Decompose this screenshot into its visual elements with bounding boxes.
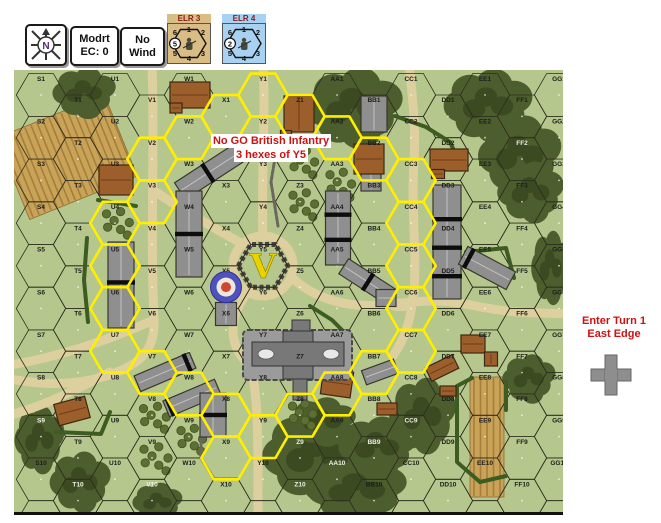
wooden-building <box>440 386 456 396</box>
hex-label-BB4: BB4 <box>367 225 380 232</box>
hex-label-Y4: Y4 <box>259 204 267 211</box>
hex-label-S10: S10 <box>35 460 47 467</box>
hex-label-AA8: AA8 <box>330 375 343 382</box>
hex-label-S5: S5 <box>37 247 45 254</box>
wooden-building <box>170 103 182 113</box>
hex-label-U5: U5 <box>111 247 120 254</box>
hex-label-X3: X3 <box>222 183 230 190</box>
hex-label-V6: V6 <box>148 311 156 318</box>
elr-counter-face: 6123452 <box>222 23 266 64</box>
hex-label-GG7: GG7 <box>552 332 563 339</box>
hex-label-CC9: CC9 <box>404 417 417 424</box>
svg-text:4: 4 <box>187 54 192 63</box>
weather-ec-button[interactable]: Modrt EC: 0 <box>70 26 119 66</box>
stone-building <box>107 242 135 328</box>
hex-label-Z8: Z8 <box>296 396 304 403</box>
hex-label-V9: V9 <box>148 439 156 446</box>
hex-label-Z10: Z10 <box>294 481 306 488</box>
hex-label-T4: T4 <box>74 225 82 232</box>
hex-label-GG9: GG9 <box>552 417 563 424</box>
hex-label-AA4: AA4 <box>330 204 343 211</box>
hex-label-S1: S1 <box>37 76 45 83</box>
weather-line1: Modrt <box>79 33 110 46</box>
svg-text:2: 2 <box>228 39 232 48</box>
hex-label-EE5: EE5 <box>479 247 492 254</box>
wind-line2: Wind <box>129 47 156 60</box>
wooden-building <box>485 352 498 366</box>
hex-label-AA3: AA3 <box>330 161 343 168</box>
wooden-building <box>430 149 468 171</box>
hex-label-U9: U9 <box>111 417 120 424</box>
enter-turn-annotation: Enter Turn 1 East Edge <box>570 315 658 341</box>
hex-label-S3: S3 <box>37 161 45 168</box>
british-roundel-marker[interactable] <box>211 272 242 303</box>
hex-label-CC2: CC2 <box>404 119 417 126</box>
hex-label-T9: T9 <box>74 439 82 446</box>
hex-label-X10: X10 <box>220 481 232 488</box>
hex-label-X6: X6 <box>222 311 230 318</box>
hex-label-U1: U1 <box>111 76 120 83</box>
hex-label-CC1: CC1 <box>404 76 417 83</box>
hex-label-GG3: GG3 <box>552 161 563 168</box>
hex-label-BB1: BB1 <box>367 97 380 104</box>
hex-label-CC4: CC4 <box>404 204 417 211</box>
hex-label-U10: U10 <box>109 460 121 467</box>
hex-label-AA10: AA10 <box>329 460 346 467</box>
hex-label-X7: X7 <box>222 353 230 360</box>
hex-label-GG10: GG10 <box>550 460 563 467</box>
hex-label-GG1: GG1 <box>552 76 563 83</box>
hex-label-W6: W6 <box>184 289 194 296</box>
hex-label-Z4: Z4 <box>296 225 304 232</box>
hex-label-Y1: Y1 <box>259 76 267 83</box>
wooden-building <box>99 165 133 195</box>
hex-label-EE9: EE9 <box>479 417 492 424</box>
hex-label-CC6: CC6 <box>404 289 417 296</box>
hex-label-FF3: FF3 <box>516 183 528 190</box>
no-go-line1: No GO British Infantry <box>211 134 331 148</box>
hex-label-T2: T2 <box>74 140 82 147</box>
hex-label-U7: U7 <box>111 332 120 339</box>
hex-label-W1: W1 <box>184 76 194 83</box>
hex-label-Y7: Y7 <box>259 332 267 339</box>
hex-label-Z5: Z5 <box>296 268 304 275</box>
hex-label-CC3: CC3 <box>404 161 417 168</box>
hex-label-DD8: DD8 <box>441 396 454 403</box>
hex-label-BB10: BB10 <box>366 481 383 488</box>
no-go-line2: 3 hexes of Y5 <box>234 148 308 162</box>
hex-label-U2: U2 <box>111 119 120 126</box>
hex-label-T8: T8 <box>74 396 82 403</box>
enter-line1: Enter Turn 1 <box>582 315 646 327</box>
svg-text:3: 3 <box>256 49 260 58</box>
hex-label-Y8: Y8 <box>259 375 267 382</box>
hex-label-S9: S9 <box>37 417 45 424</box>
hex-label-S8: S8 <box>37 375 45 382</box>
hex-label-V3: V3 <box>148 183 156 190</box>
hex-label-FF5: FF5 <box>516 268 528 275</box>
hex-label-CC8: CC8 <box>404 375 417 382</box>
hex-label-BB8: BB8 <box>367 396 380 403</box>
hex-label-W10: W10 <box>182 460 196 467</box>
svg-text:6: 6 <box>173 28 177 37</box>
hex-label-T7: T7 <box>74 353 82 360</box>
hex-label-EE3: EE3 <box>479 161 492 168</box>
hex-label-FF4: FF4 <box>516 225 528 232</box>
hex-label-DD1: DD1 <box>441 97 454 104</box>
victory-v-marker[interactable]: V <box>249 247 277 287</box>
stone-building <box>432 185 462 299</box>
hex-label-FF9: FF9 <box>516 439 528 446</box>
hex-label-S2: S2 <box>37 119 45 126</box>
hex-label-Y3: Y3 <box>259 161 267 168</box>
hex-label-S4: S4 <box>37 204 45 211</box>
hex-label-X1: X1 <box>222 97 230 104</box>
svg-text:4: 4 <box>242 54 247 63</box>
hex-label-X4: X4 <box>222 225 230 232</box>
hex-label-W8: W8 <box>184 375 194 382</box>
stone-building <box>325 191 352 265</box>
wooden-building <box>377 403 397 415</box>
svg-text:5: 5 <box>173 49 177 58</box>
hex-label-V10: V10 <box>146 481 158 488</box>
hex-label-U4: U4 <box>111 204 120 211</box>
hex-label-W9: W9 <box>184 417 194 424</box>
hex-label-Z1: Z1 <box>296 97 304 104</box>
hex-label-W4: W4 <box>184 204 194 211</box>
hex-label-Y6: Y6 <box>259 289 267 296</box>
hex-label-Z7: Z7 <box>296 353 304 360</box>
hex-label-DD3: DD3 <box>441 183 454 190</box>
hex-label-AA5: AA5 <box>330 247 343 254</box>
compass-button[interactable]: N <box>25 24 67 66</box>
hex-label-BB9: BB9 <box>367 439 380 446</box>
hex-label-AA2: AA2 <box>330 119 343 126</box>
vasl-window: { "toolbar": { "compass": {"letter": "N"… <box>0 0 661 523</box>
hex-label-BB5: BB5 <box>367 268 380 275</box>
hex-label-W3: W3 <box>184 161 194 168</box>
hex-label-GG8: GG8 <box>552 375 563 382</box>
hex-label-U8: U8 <box>111 375 120 382</box>
hex-label-T6: T6 <box>74 311 82 318</box>
hex-label-CC7: CC7 <box>404 332 417 339</box>
wooden-building <box>354 144 384 174</box>
hex-label-U6: U6 <box>111 289 120 296</box>
hex-label-BB6: BB6 <box>367 311 380 318</box>
hex-label-BB2: BB2 <box>367 140 380 147</box>
hex-label-EE7: EE7 <box>479 332 492 339</box>
hex-label-V1: V1 <box>148 97 156 104</box>
hex-label-DD7: DD7 <box>441 353 454 360</box>
hex-label-Y9: Y9 <box>259 417 267 424</box>
compass-icon: N <box>29 28 63 62</box>
elr-counter-face: 6123455 <box>167 23 211 64</box>
hex-label-DD6: DD6 <box>441 311 454 318</box>
elr-label: ELR 4 <box>222 14 266 23</box>
hex-label-FF10: FF10 <box>514 481 530 488</box>
hex-label-FF1: FF1 <box>516 97 528 104</box>
hex-label-V2: V2 <box>148 140 156 147</box>
hex-label-GG6: GG6 <box>552 289 563 296</box>
svg-text:2: 2 <box>201 28 205 37</box>
wind-line1: No <box>135 34 150 47</box>
hex-label-U3: U3 <box>111 161 120 168</box>
elr4-counter[interactable]: ELR 46123452 <box>222 14 266 64</box>
hex-label-DD2: DD2 <box>441 140 454 147</box>
hex-label-EE4: EE4 <box>479 204 492 211</box>
hex-label-GG2: GG2 <box>552 119 563 126</box>
toolbar: N Modrt EC: 0 No Wind ELR 36123455 ELR 4… <box>0 0 661 70</box>
svg-text:N: N <box>42 41 49 52</box>
svg-text:5: 5 <box>228 49 232 58</box>
hex-label-EE10: EE10 <box>477 460 493 467</box>
hex-label-Y10: Y10 <box>257 460 269 467</box>
hex-label-GG5: GG5 <box>552 247 563 254</box>
hex-label-Z6: Z6 <box>296 311 304 318</box>
svg-text:5: 5 <box>173 39 177 48</box>
hex-label-Z9: Z9 <box>296 439 304 446</box>
hex-label-DD10: DD10 <box>440 481 457 488</box>
hex-label-FF2: FF2 <box>516 140 528 147</box>
elr-label: ELR 3 <box>167 14 211 23</box>
hex-label-W5: W5 <box>184 247 194 254</box>
hex-label-S6: S6 <box>37 289 45 296</box>
hex-label-DD4: DD4 <box>441 225 454 232</box>
hex-label-V8: V8 <box>148 396 156 403</box>
hex-label-AA9: AA9 <box>330 417 343 424</box>
hex-label-FF7: FF7 <box>516 353 528 360</box>
svg-text:3: 3 <box>201 49 205 58</box>
hex-label-EE2: EE2 <box>479 119 492 126</box>
hex-label-DD5: DD5 <box>441 268 454 275</box>
hex-label-AA7: AA7 <box>330 332 343 339</box>
hex-label-T1: T1 <box>74 97 82 104</box>
hex-label-FF8: FF8 <box>516 396 528 403</box>
hex-label-CC5: CC5 <box>404 247 417 254</box>
svg-text:2: 2 <box>256 28 260 37</box>
enter-line2: East Edge <box>587 328 640 340</box>
hex-label-V7: V7 <box>148 353 156 360</box>
svg-text:1: 1 <box>242 25 246 34</box>
hex-label-S7: S7 <box>37 332 45 339</box>
hex-label-T10: T10 <box>72 481 84 488</box>
hex-label-EE6: EE6 <box>479 289 492 296</box>
weather-line2: EC: 0 <box>80 46 108 59</box>
hex-label-GG4: GG4 <box>552 204 563 211</box>
hex-label-DD9: DD9 <box>441 439 454 446</box>
svg-text:1: 1 <box>187 25 191 34</box>
no-go-annotation: No GO British Infantry 3 hexes of Y5 <box>186 134 356 162</box>
hex-label-Y2: Y2 <box>259 119 267 126</box>
hex-label-EE1: EE1 <box>479 76 492 83</box>
hex-label-CC10: CC10 <box>403 460 420 467</box>
hex-label-T5: T5 <box>74 268 82 275</box>
hex-label-Z3: Z3 <box>296 183 304 190</box>
hex-label-BB3: BB3 <box>367 183 380 190</box>
hex-label-AA6: AA6 <box>330 289 343 296</box>
hex-label-EE8: EE8 <box>479 375 492 382</box>
hex-label-V4: V4 <box>148 225 156 232</box>
german-cross-icon <box>588 352 634 398</box>
hex-label-X8: X8 <box>222 396 230 403</box>
hex-label-FF6: FF6 <box>516 311 528 318</box>
hex-label-AA1: AA1 <box>330 76 343 83</box>
hex-label-BB7: BB7 <box>367 353 380 360</box>
svg-text:6: 6 <box>228 28 232 37</box>
hex-label-W2: W2 <box>184 119 194 126</box>
elr3-counter[interactable]: ELR 36123455 <box>167 14 211 64</box>
hex-label-W7: W7 <box>184 332 194 339</box>
hex-label-T3: T3 <box>74 183 82 190</box>
hex-label-X9: X9 <box>222 439 230 446</box>
hex-label-V5: V5 <box>148 268 156 275</box>
wind-button[interactable]: No Wind <box>120 27 165 66</box>
